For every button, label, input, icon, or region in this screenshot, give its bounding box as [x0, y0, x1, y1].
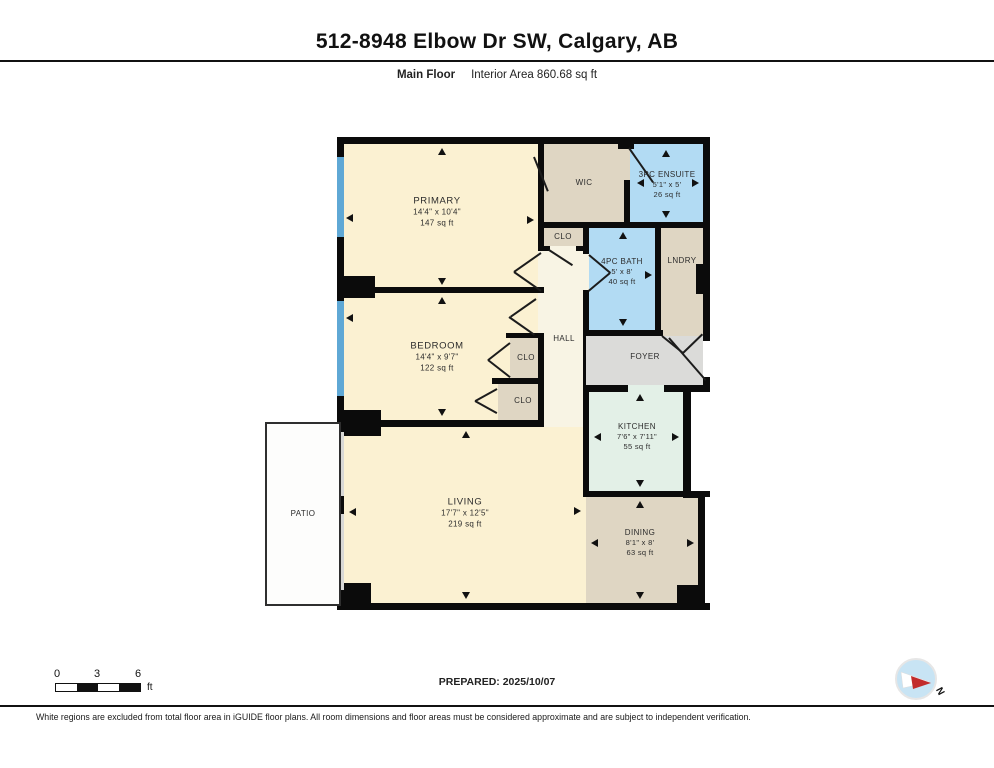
- wall: [538, 222, 710, 228]
- wall: [683, 385, 691, 497]
- dimension-arrow: [619, 232, 627, 239]
- kitchen-opening: [628, 385, 664, 392]
- bedroom-door-gap: [538, 293, 544, 334]
- label-wic: WIC: [576, 178, 593, 188]
- wall-pillar: [677, 585, 705, 610]
- label-living: LIVING17'7" x 12'5"219 sq ft: [441, 496, 489, 529]
- bath-door-gap: [583, 254, 589, 290]
- wall: [492, 378, 544, 384]
- label-lndry: LNDRY: [668, 256, 697, 266]
- dimension-arrow: [662, 211, 670, 218]
- exterior-cutout: [705, 497, 710, 603]
- dimension-arrow: [672, 433, 679, 441]
- floorplan-page: 512-8948 Elbow Dr SW, Calgary, AB Main F…: [0, 0, 994, 768]
- label-dining: DINING8'1" x 8'63 sq ft: [625, 528, 655, 558]
- dimension-arrow: [574, 507, 581, 515]
- dimension-arrow: [527, 216, 534, 224]
- label-foyer: FOYER: [630, 352, 660, 362]
- dimension-arrow: [346, 214, 353, 222]
- label-patio: PATIO: [291, 509, 316, 519]
- entry-door-gap: [703, 341, 710, 377]
- compass-icon: [894, 657, 938, 706]
- wall-pillar: [696, 264, 710, 294]
- dimension-arrow: [636, 480, 644, 487]
- wall: [583, 391, 589, 497]
- wall: [344, 420, 540, 427]
- dimension-arrow: [346, 314, 353, 322]
- dimension-arrow: [594, 433, 601, 441]
- window: [337, 156, 344, 238]
- label-primary: PRIMARY14'4" x 10'4"147 sq ft: [413, 195, 461, 228]
- title-divider: [0, 60, 994, 62]
- page-title: 512-8948 Elbow Dr SW, Calgary, AB: [0, 30, 994, 54]
- label-ensuite: 3PC ENSUITE5'1" x 5'26 sq ft: [639, 170, 696, 200]
- dimension-arrow: [438, 409, 446, 416]
- wall: [583, 222, 589, 254]
- dimension-arrow: [619, 319, 627, 326]
- dimension-arrow: [438, 148, 446, 155]
- wall: [655, 222, 661, 330]
- dimension-arrow: [687, 539, 694, 547]
- wall: [583, 385, 628, 392]
- dimension-arrow: [636, 394, 644, 401]
- label-kitchen: KITCHEN7'6" x 7'11"55 sq ft: [617, 422, 657, 452]
- label-bedroom: BEDROOM14'4" x 9'7"122 sq ft: [410, 340, 463, 373]
- label-bath: 4PC BATH5' x 8'40 sq ft: [601, 257, 643, 287]
- prepared-date: PREPARED: 2025/10/07: [0, 676, 994, 688]
- wall: [538, 144, 544, 250]
- label-clo-top: CLO: [554, 232, 572, 242]
- window: [337, 300, 344, 397]
- dimension-arrow: [349, 508, 356, 516]
- disclaimer-text: White regions are excluded from total fl…: [36, 712, 966, 722]
- dimension-arrow: [636, 592, 644, 599]
- dimension-arrow: [438, 297, 446, 304]
- dimension-arrow: [591, 539, 598, 547]
- exterior-cutout: [691, 392, 710, 491]
- dimension-arrow: [645, 271, 652, 279]
- floor-subtitle: Main FloorInterior Area 860.68 sq ft: [0, 69, 994, 81]
- floor-label: Main Floor: [397, 69, 455, 81]
- dimension-arrow: [438, 278, 446, 285]
- wall-pillar: [337, 276, 375, 298]
- footer-divider: [0, 705, 994, 707]
- label-clo-low: CLO: [514, 396, 532, 406]
- interior-area-label: Interior Area 860.68 sq ft: [471, 69, 597, 81]
- wall: [506, 333, 544, 338]
- wall-pillar: [618, 137, 634, 149]
- dimension-arrow: [662, 150, 670, 157]
- wall: [583, 330, 663, 336]
- dimension-arrow: [636, 501, 644, 508]
- wall: [624, 180, 630, 222]
- dimension-arrow: [462, 431, 470, 438]
- label-hall: HALL: [553, 334, 575, 344]
- dimension-arrow: [462, 592, 470, 599]
- wall: [583, 491, 605, 497]
- label-clo-mid: CLO: [517, 353, 535, 363]
